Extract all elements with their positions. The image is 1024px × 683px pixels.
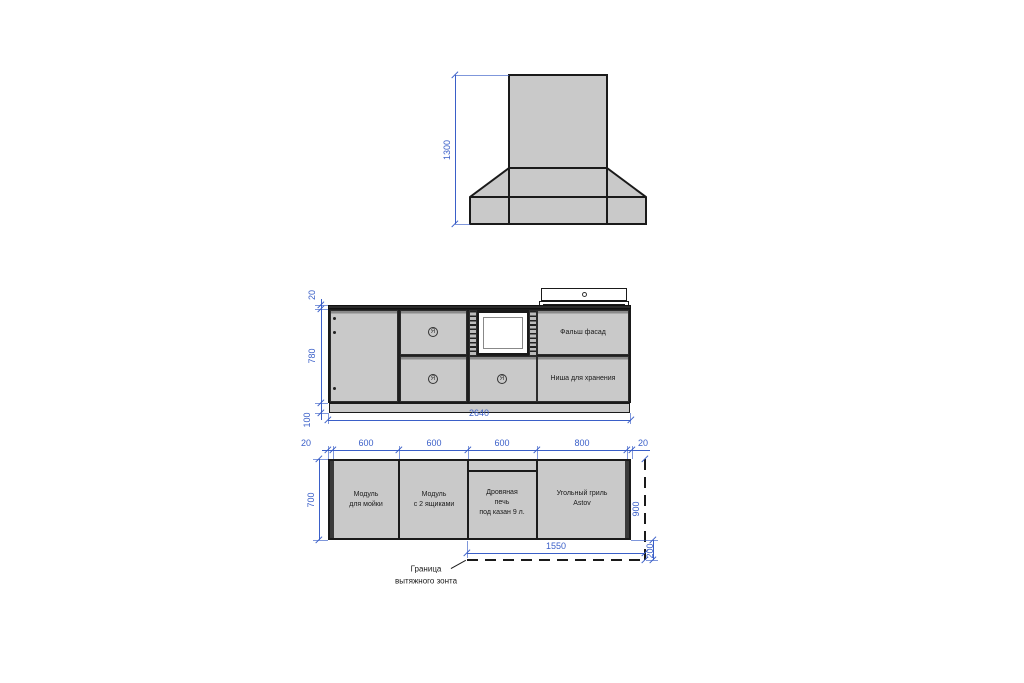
front-width-dim-line — [328, 420, 631, 421]
plan-divider — [536, 460, 538, 539]
hinge-icon — [333, 331, 336, 334]
hinge-icon — [333, 317, 336, 320]
storage-niche-label: Ниша для хранения — [551, 374, 616, 384]
sink-module-door — [331, 311, 397, 401]
plan-side-right-dim-text: 20 — [638, 438, 648, 448]
plan-module2-dim-text: 600 — [426, 438, 441, 448]
plan-depth-dim-text: 700 — [306, 492, 316, 507]
plan-divider — [467, 460, 469, 539]
hood-width-dim-line — [467, 553, 645, 554]
plan-side-panel-right — [625, 461, 629, 538]
hood-dim-extension-bottom — [455, 224, 470, 225]
knob-icon: Я — [497, 374, 507, 384]
hood-height-dim-line — [455, 75, 456, 224]
countertop-dim-text: 20 — [307, 290, 317, 300]
plan-top-dim-line — [322, 450, 650, 451]
stove-vent-grate-left — [470, 311, 476, 355]
knob-icon: Я — [428, 327, 438, 337]
hood-height-dim-text: 1300 — [442, 140, 452, 160]
dim-tick — [627, 416, 634, 423]
plan-side-left-dim-text: 20 — [301, 438, 311, 448]
false-facade-label: Фальш фасад — [560, 328, 606, 338]
hood-dim-extension-top — [455, 75, 509, 76]
grill-knob-icon — [582, 292, 587, 297]
stove-vent-grate-right — [530, 311, 536, 355]
stove-firebox-door — [477, 311, 529, 355]
hood-boundary-callout: Граница вытяжного зонта — [395, 564, 457, 589]
plan-depth-dim-line — [319, 459, 320, 540]
plan-module2-label: Модуль с 2 ящиками — [414, 490, 455, 510]
plinth-dim-text: 100 — [302, 412, 312, 427]
front-width-dim-text: 2640 — [469, 408, 489, 418]
knob-icon: Я — [428, 374, 438, 384]
plan-module1-dim-text: 600 — [358, 438, 373, 448]
plan-module4-label: Угольный гриль Astov — [557, 489, 608, 509]
plan-module3-dim-text: 600 — [494, 438, 509, 448]
body-height-dim-text: 780 — [307, 348, 317, 363]
hood-depth-dim-text: 900 — [631, 501, 641, 516]
stove-back-strip-line — [469, 470, 536, 472]
drawing-canvas: 1300 Я Я Я Фальш фасад Ниша для хранения… — [0, 0, 1024, 683]
hood-boundary-bottom — [467, 559, 646, 561]
stove-firebox-inner — [483, 317, 523, 349]
hood-width-dim-text: 1550 — [546, 541, 566, 551]
plan-side-panel-left — [330, 461, 334, 538]
plan-module4-dim-text: 800 — [574, 438, 589, 448]
plan-module1-label: Модуль для мойки — [349, 490, 383, 510]
plan-module3-label: Дровяная печь под казан 9 л. — [479, 488, 524, 518]
plan-divider — [398, 460, 400, 539]
hinge-icon — [333, 387, 336, 390]
exhaust-hood-outline — [468, 74, 648, 226]
